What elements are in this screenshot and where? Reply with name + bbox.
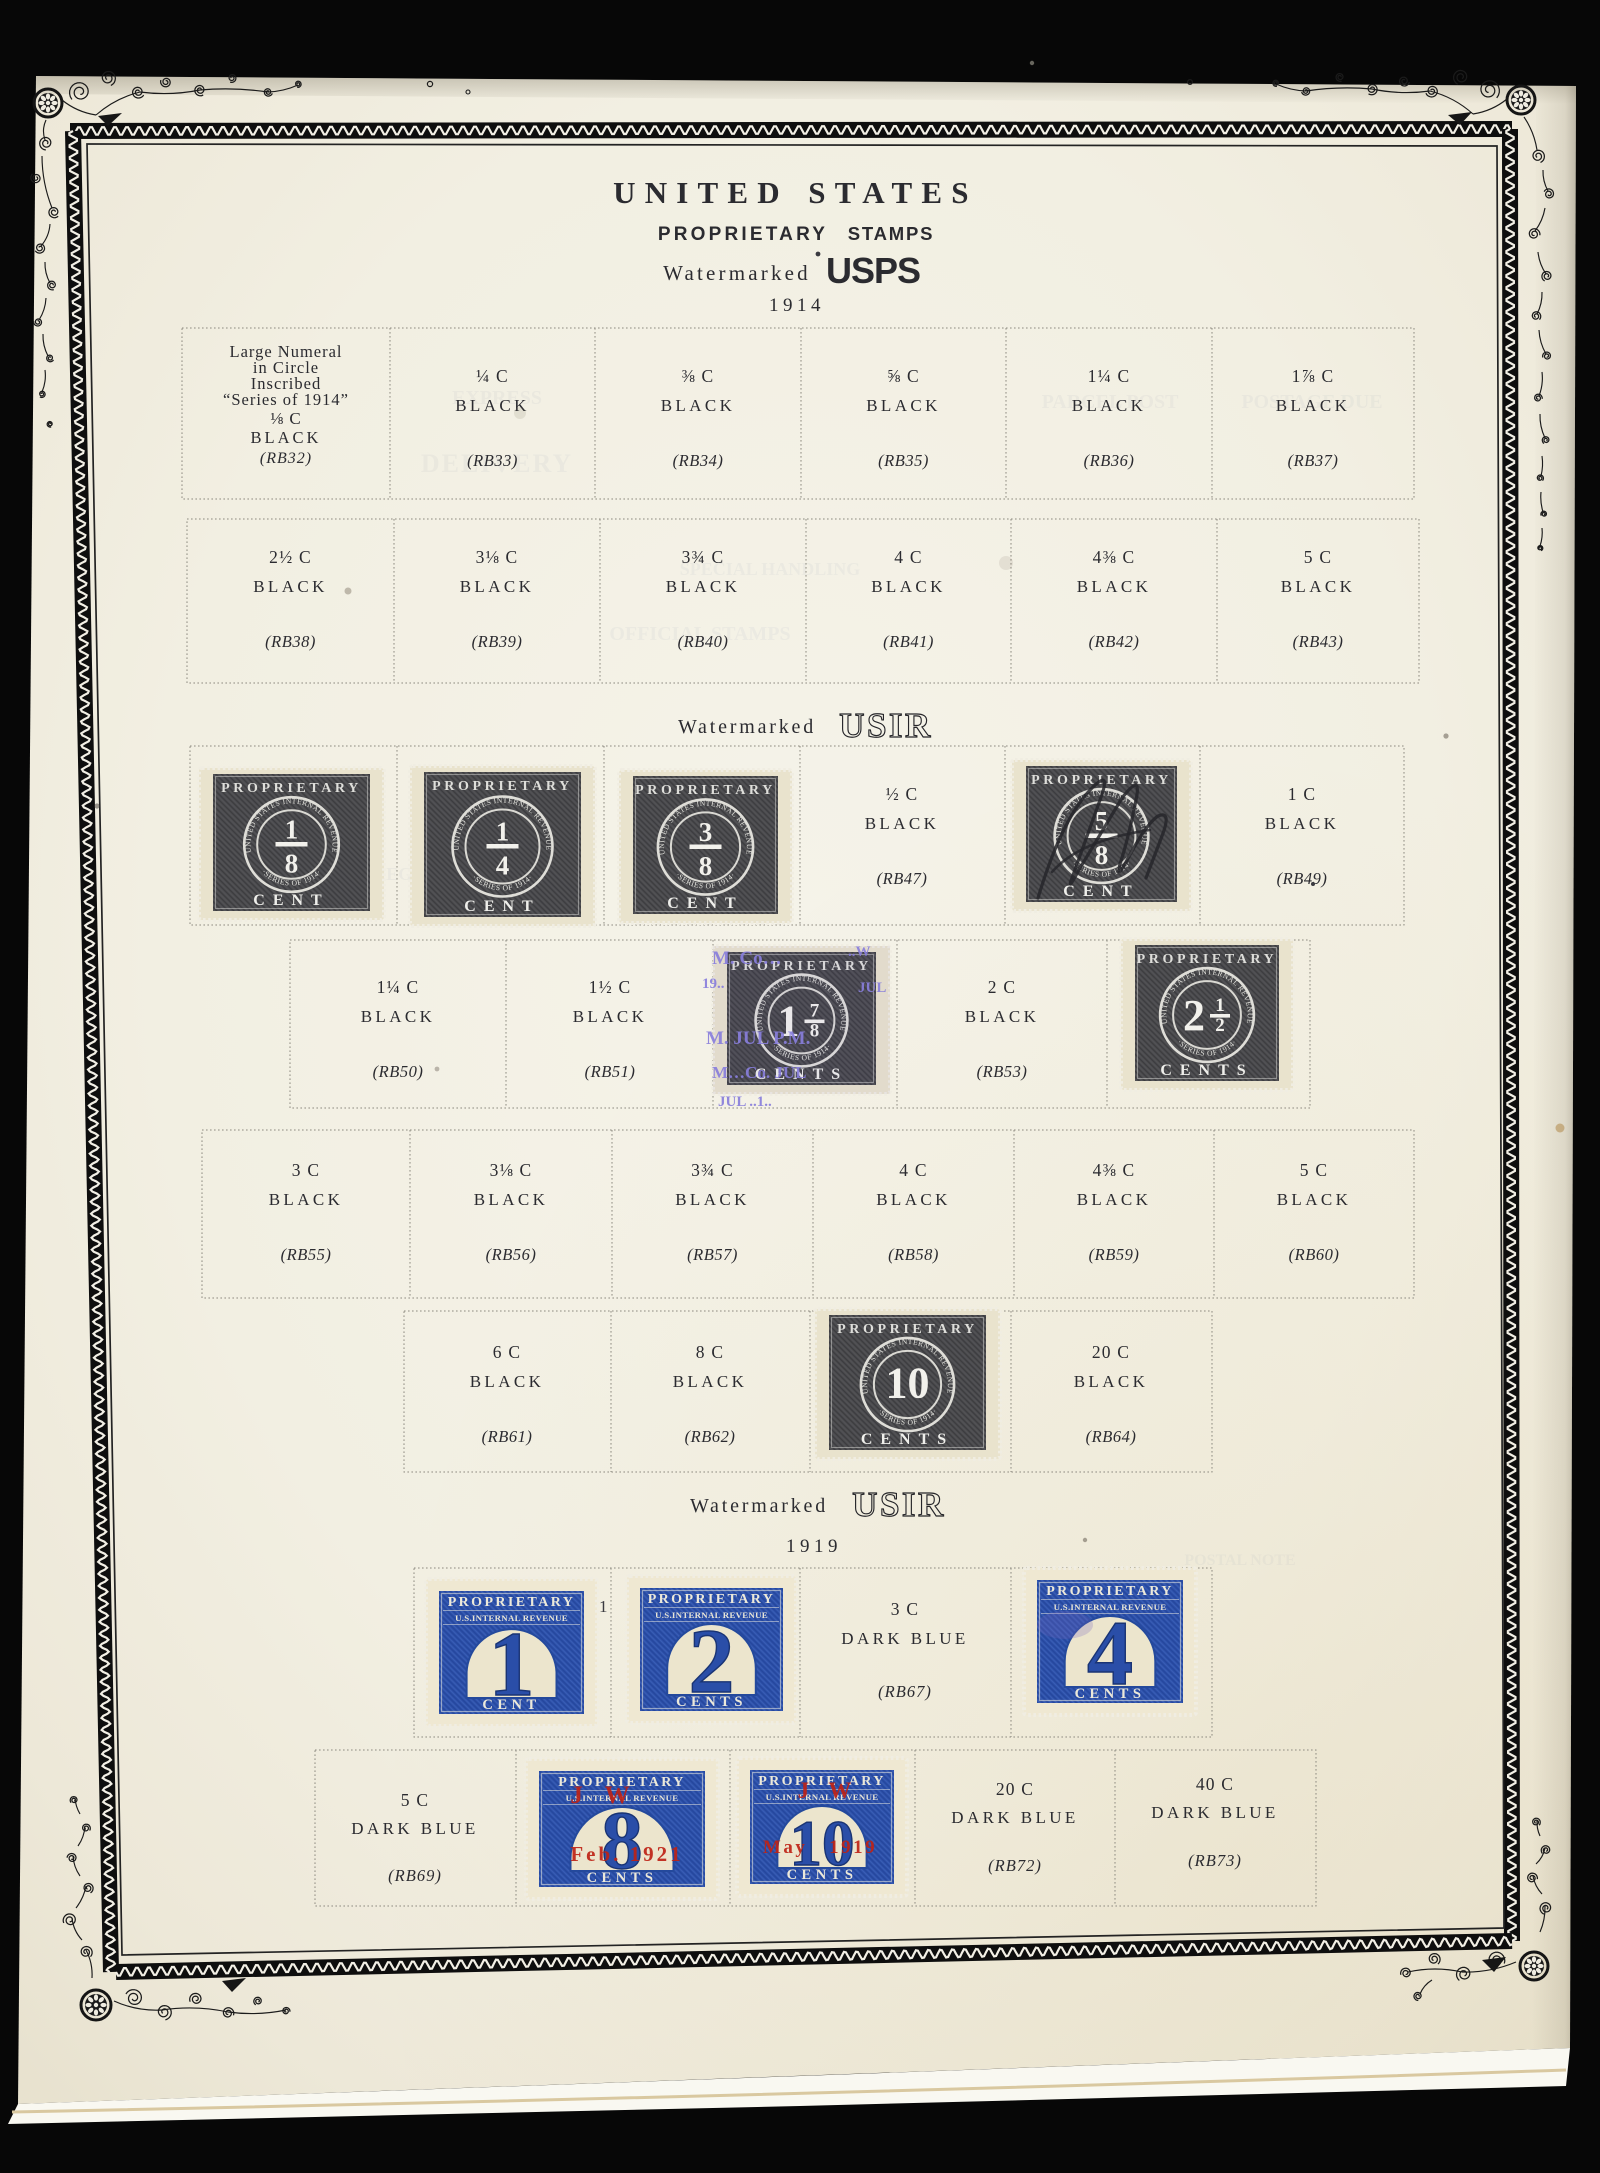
svg-text:(RB47): (RB47) bbox=[877, 869, 928, 888]
svg-text:4⅜ C: 4⅜ C bbox=[1093, 1160, 1136, 1180]
svg-text:3¾ C: 3¾ C bbox=[682, 547, 725, 567]
svg-text:(RB36): (RB36) bbox=[1084, 451, 1135, 470]
svg-text:1: 1 bbox=[285, 815, 299, 845]
svg-text:(RB51): (RB51) bbox=[585, 1062, 636, 1081]
svg-text:BLACK: BLACK bbox=[865, 814, 940, 833]
svg-text:4 C: 4 C bbox=[899, 1160, 927, 1180]
svg-text:BLACK: BLACK bbox=[460, 577, 535, 596]
svg-text:PROPRIETARY: PROPRIETARY bbox=[635, 783, 776, 798]
svg-text:PROPRIETARY: PROPRIETARY bbox=[658, 224, 828, 245]
svg-text:(RB34): (RB34) bbox=[673, 451, 724, 470]
svg-text:(RB32): (RB32) bbox=[260, 450, 312, 467]
svg-text:(RB56): (RB56) bbox=[486, 1245, 537, 1264]
svg-text:Watermarked: Watermarked bbox=[663, 261, 811, 285]
svg-text:USIR: USIR bbox=[852, 1485, 946, 1524]
svg-text:BLACK: BLACK bbox=[1276, 396, 1351, 415]
svg-text:BLACK: BLACK bbox=[1281, 577, 1356, 596]
svg-text:(RB55): (RB55) bbox=[281, 1245, 332, 1264]
svg-text:1⅞ C: 1⅞ C bbox=[1292, 366, 1335, 386]
svg-text:6 C: 6 C bbox=[493, 1342, 521, 1362]
svg-text:BLACK: BLACK bbox=[1072, 396, 1147, 415]
svg-text:BLACK: BLACK bbox=[1277, 1190, 1352, 1209]
svg-text:1914: 1914 bbox=[769, 295, 825, 316]
svg-text:5 C: 5 C bbox=[1300, 1160, 1328, 1180]
svg-text:8: 8 bbox=[285, 849, 299, 879]
svg-text:BLACK: BLACK bbox=[673, 1372, 748, 1391]
svg-text:3¾ C: 3¾ C bbox=[691, 1160, 734, 1180]
svg-text:1: 1 bbox=[496, 817, 510, 847]
svg-text:5 C: 5 C bbox=[1304, 547, 1332, 567]
svg-text:(RB43): (RB43) bbox=[1293, 632, 1344, 651]
svg-text:BLACK: BLACK bbox=[675, 1190, 750, 1209]
svg-text:CENT: CENT bbox=[667, 895, 743, 912]
svg-text:USIR: USIR bbox=[839, 706, 933, 745]
svg-text:BLACK: BLACK bbox=[1265, 814, 1340, 833]
svg-text:1¼ C: 1¼ C bbox=[1088, 366, 1131, 386]
svg-text:(RB39): (RB39) bbox=[472, 632, 523, 651]
svg-text:BLACK: BLACK bbox=[253, 577, 328, 596]
svg-text:1: 1 bbox=[1215, 995, 1225, 1016]
svg-text:BLACK: BLACK bbox=[666, 577, 741, 596]
svg-text:BLACK: BLACK bbox=[965, 1007, 1040, 1026]
svg-text:(RB37): (RB37) bbox=[1288, 451, 1339, 470]
svg-text:BLACK: BLACK bbox=[866, 396, 941, 415]
svg-text:(RB60): (RB60) bbox=[1289, 1245, 1340, 1264]
svg-text:BLACK: BLACK bbox=[251, 428, 322, 447]
svg-text:BLACK: BLACK bbox=[1077, 1190, 1152, 1209]
svg-text:STATES: STATES bbox=[808, 175, 978, 210]
svg-text:“Series of 1914”: “Series of 1914” bbox=[223, 390, 349, 409]
svg-text:BLACK: BLACK bbox=[361, 1007, 436, 1026]
svg-text:PROPRIETARY: PROPRIETARY bbox=[648, 1592, 776, 1607]
svg-text:10: 10 bbox=[886, 1359, 930, 1408]
svg-text:UNITED: UNITED bbox=[613, 175, 789, 210]
svg-text:DARK BLUE: DARK BLUE bbox=[841, 1629, 968, 1648]
svg-text:8: 8 bbox=[1095, 840, 1109, 870]
svg-text:2: 2 bbox=[1215, 1015, 1225, 1036]
svg-text:¼ C: ¼ C bbox=[476, 366, 509, 386]
svg-text:CENTS: CENTS bbox=[1075, 1686, 1146, 1702]
svg-text:M. JUL P.M.: M. JUL P.M. bbox=[706, 1028, 810, 1049]
svg-text:2½ C: 2½ C bbox=[269, 547, 312, 567]
svg-text:CENT: CENT bbox=[1063, 883, 1139, 900]
svg-text:(RB40): (RB40) bbox=[678, 632, 729, 651]
svg-text:1½ C: 1½ C bbox=[589, 977, 632, 997]
svg-text:CENTS: CENTS bbox=[1160, 1062, 1253, 1079]
svg-text:3 C: 3 C bbox=[292, 1160, 320, 1180]
svg-text:DARK BLUE: DARK BLUE bbox=[951, 1808, 1078, 1827]
svg-text:4 C: 4 C bbox=[894, 547, 922, 567]
svg-text:(RB50): (RB50) bbox=[373, 1062, 424, 1081]
svg-text:20 C: 20 C bbox=[1092, 1342, 1130, 1362]
svg-text:BLACK: BLACK bbox=[1077, 577, 1152, 596]
svg-text:M. Co…: M. Co… bbox=[712, 948, 782, 969]
svg-text:BLACK: BLACK bbox=[573, 1007, 648, 1026]
svg-text:(RB35): (RB35) bbox=[878, 451, 929, 470]
svg-text:PROPRIETARY: PROPRIETARY bbox=[837, 1322, 978, 1337]
svg-text:(RB69): (RB69) bbox=[388, 1866, 442, 1885]
svg-text:STAMPS: STAMPS bbox=[848, 223, 935, 244]
svg-text:40 C: 40 C bbox=[1196, 1774, 1234, 1794]
svg-text:CENT: CENT bbox=[464, 898, 540, 915]
svg-text:BLACK: BLACK bbox=[876, 1190, 951, 1209]
svg-text:⅝ C: ⅝ C bbox=[887, 366, 920, 386]
svg-text:(RB58): (RB58) bbox=[888, 1245, 939, 1264]
svg-text:BLACK: BLACK bbox=[474, 1190, 549, 1209]
svg-text:(RB49): (RB49) bbox=[1277, 869, 1328, 888]
svg-text:BLACK: BLACK bbox=[1074, 1372, 1149, 1391]
svg-text:M…Co. JUL: M…Co. JUL bbox=[712, 1063, 806, 1082]
svg-text:BLACK: BLACK bbox=[470, 1372, 545, 1391]
svg-text:20 C: 20 C bbox=[996, 1779, 1034, 1799]
svg-text:⅜ C: ⅜ C bbox=[682, 366, 715, 386]
svg-text:3: 3 bbox=[699, 817, 713, 847]
svg-text:POSTAL NOTE: POSTAL NOTE bbox=[1184, 1552, 1295, 1569]
svg-text:1 C: 1 C bbox=[1288, 784, 1316, 804]
svg-text:3⅛ C: 3⅛ C bbox=[490, 1160, 533, 1180]
svg-text:4: 4 bbox=[496, 851, 510, 881]
svg-text:1919: 1919 bbox=[786, 1536, 842, 1557]
svg-text:19..: 19.. bbox=[702, 976, 725, 992]
svg-text:(RB61): (RB61) bbox=[482, 1427, 533, 1446]
svg-text:(RB72): (RB72) bbox=[988, 1856, 1042, 1875]
svg-text:3⅛ C: 3⅛ C bbox=[476, 547, 519, 567]
svg-text:PROPRIETARY: PROPRIETARY bbox=[221, 781, 362, 796]
svg-text:1¼ C: 1¼ C bbox=[377, 977, 420, 997]
svg-text:USPS: USPS bbox=[826, 250, 920, 291]
svg-text:2 C: 2 C bbox=[988, 977, 1016, 997]
svg-text:J W: J W bbox=[570, 1782, 637, 1809]
svg-text:JUL ..1..: JUL ..1.. bbox=[718, 1094, 772, 1110]
svg-text:DARK BLUE: DARK BLUE bbox=[1151, 1803, 1278, 1822]
svg-text:JUL: JUL bbox=[858, 980, 886, 996]
svg-text:Feb. 1921: Feb. 1921 bbox=[570, 1842, 683, 1866]
svg-text:May 1919: May 1919 bbox=[763, 1837, 877, 1858]
svg-text:(RB73): (RB73) bbox=[1188, 1851, 1242, 1870]
svg-text:(RB53): (RB53) bbox=[977, 1062, 1028, 1081]
svg-text:(RB41): (RB41) bbox=[883, 632, 934, 651]
svg-text:PROPRIETARY: PROPRIETARY bbox=[1046, 1584, 1174, 1599]
svg-text:PROPRIETARY: PROPRIETARY bbox=[448, 1595, 576, 1610]
svg-text:(RB62): (RB62) bbox=[685, 1427, 736, 1446]
svg-text:..W: ..W bbox=[848, 944, 871, 960]
svg-text:2: 2 bbox=[1183, 991, 1205, 1040]
svg-text:Watermarked: Watermarked bbox=[690, 1495, 828, 1517]
svg-text:(RB57): (RB57) bbox=[687, 1245, 738, 1264]
svg-text:½ C: ½ C bbox=[886, 784, 919, 804]
svg-text:BLACK: BLACK bbox=[871, 577, 946, 596]
svg-text:(RB59): (RB59) bbox=[1089, 1245, 1140, 1264]
svg-text:(RB64): (RB64) bbox=[1086, 1427, 1137, 1446]
svg-text:Watermarked: Watermarked bbox=[678, 716, 816, 738]
svg-text:(RB33): (RB33) bbox=[467, 451, 518, 470]
svg-text:⅛ C: ⅛ C bbox=[270, 409, 301, 428]
svg-text:(RB38): (RB38) bbox=[265, 632, 316, 651]
svg-text:DARK BLUE: DARK BLUE bbox=[351, 1819, 478, 1838]
svg-text:8 C: 8 C bbox=[696, 1342, 724, 1362]
svg-text:BLACK: BLACK bbox=[661, 396, 736, 415]
svg-text:CENT: CENT bbox=[253, 892, 329, 909]
svg-text:1: 1 bbox=[599, 1597, 608, 1616]
svg-text:PROPRIETARY: PROPRIETARY bbox=[1137, 952, 1278, 967]
svg-text:J W: J W bbox=[798, 1778, 859, 1803]
svg-text:(RB42): (RB42) bbox=[1089, 632, 1140, 651]
svg-text:CENT: CENT bbox=[482, 1697, 540, 1713]
svg-text:8: 8 bbox=[699, 851, 713, 881]
svg-text:PROPRIETARY: PROPRIETARY bbox=[432, 779, 573, 794]
svg-text:BLACK: BLACK bbox=[269, 1190, 344, 1209]
svg-text:CENTS: CENTS bbox=[587, 1870, 658, 1886]
svg-text:4⅜ C: 4⅜ C bbox=[1093, 547, 1136, 567]
svg-text:CENTS: CENTS bbox=[676, 1694, 747, 1710]
svg-text:5 C: 5 C bbox=[401, 1790, 429, 1810]
svg-text:CENTS: CENTS bbox=[787, 1867, 858, 1883]
svg-text:3 C: 3 C bbox=[891, 1599, 919, 1619]
svg-text:CENTS: CENTS bbox=[861, 1431, 954, 1448]
svg-text:(RB67): (RB67) bbox=[878, 1682, 932, 1701]
